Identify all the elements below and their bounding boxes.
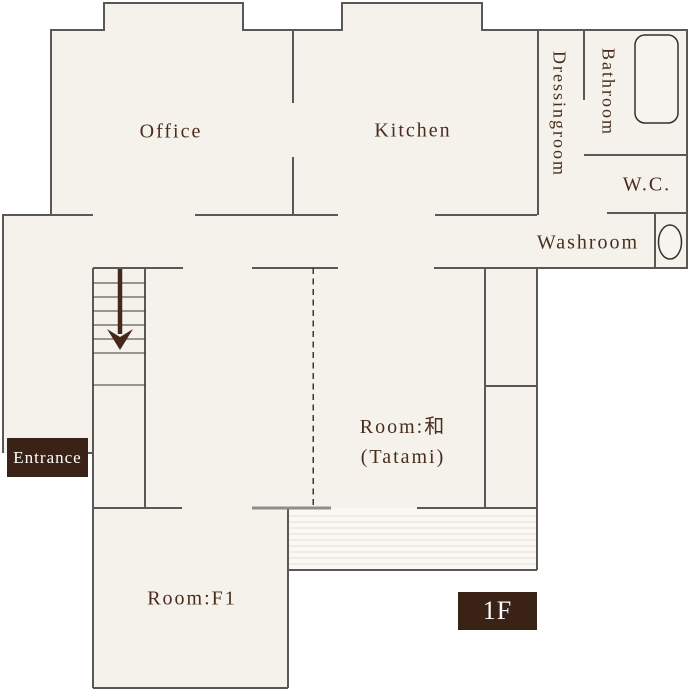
- entrance-badge: Entrance: [7, 438, 88, 477]
- dressingroom-label: Dressingroom: [549, 51, 570, 177]
- floor-badge-label: 1F: [483, 596, 512, 626]
- washroom-label: Washroom: [537, 232, 639, 255]
- room-f1-label: Room:F1: [147, 588, 237, 611]
- tatami-room-label-line2: (Tatami): [360, 442, 446, 472]
- floor-badge: 1F: [458, 592, 537, 630]
- kitchen-label: Kitchen: [374, 120, 451, 143]
- floor-plan-drawing: [0, 0, 690, 690]
- engawa-strip: [288, 508, 537, 570]
- toilet-icon: [659, 225, 682, 259]
- bathroom-label: Bathroom: [598, 48, 619, 136]
- floor-plan-1f: Office Kitchen Dressingroom Bathroom W.C…: [0, 0, 690, 690]
- floor-area: [3, 3, 688, 688]
- bathtub-icon: [635, 35, 678, 123]
- tatami-room-label: Room:和 (Tatami): [360, 412, 446, 472]
- wc-label: W.C.: [623, 174, 671, 197]
- office-label: Office: [140, 121, 203, 144]
- entrance-badge-label: Entrance: [13, 448, 81, 468]
- tatami-room-label-line1: Room:和: [360, 412, 446, 442]
